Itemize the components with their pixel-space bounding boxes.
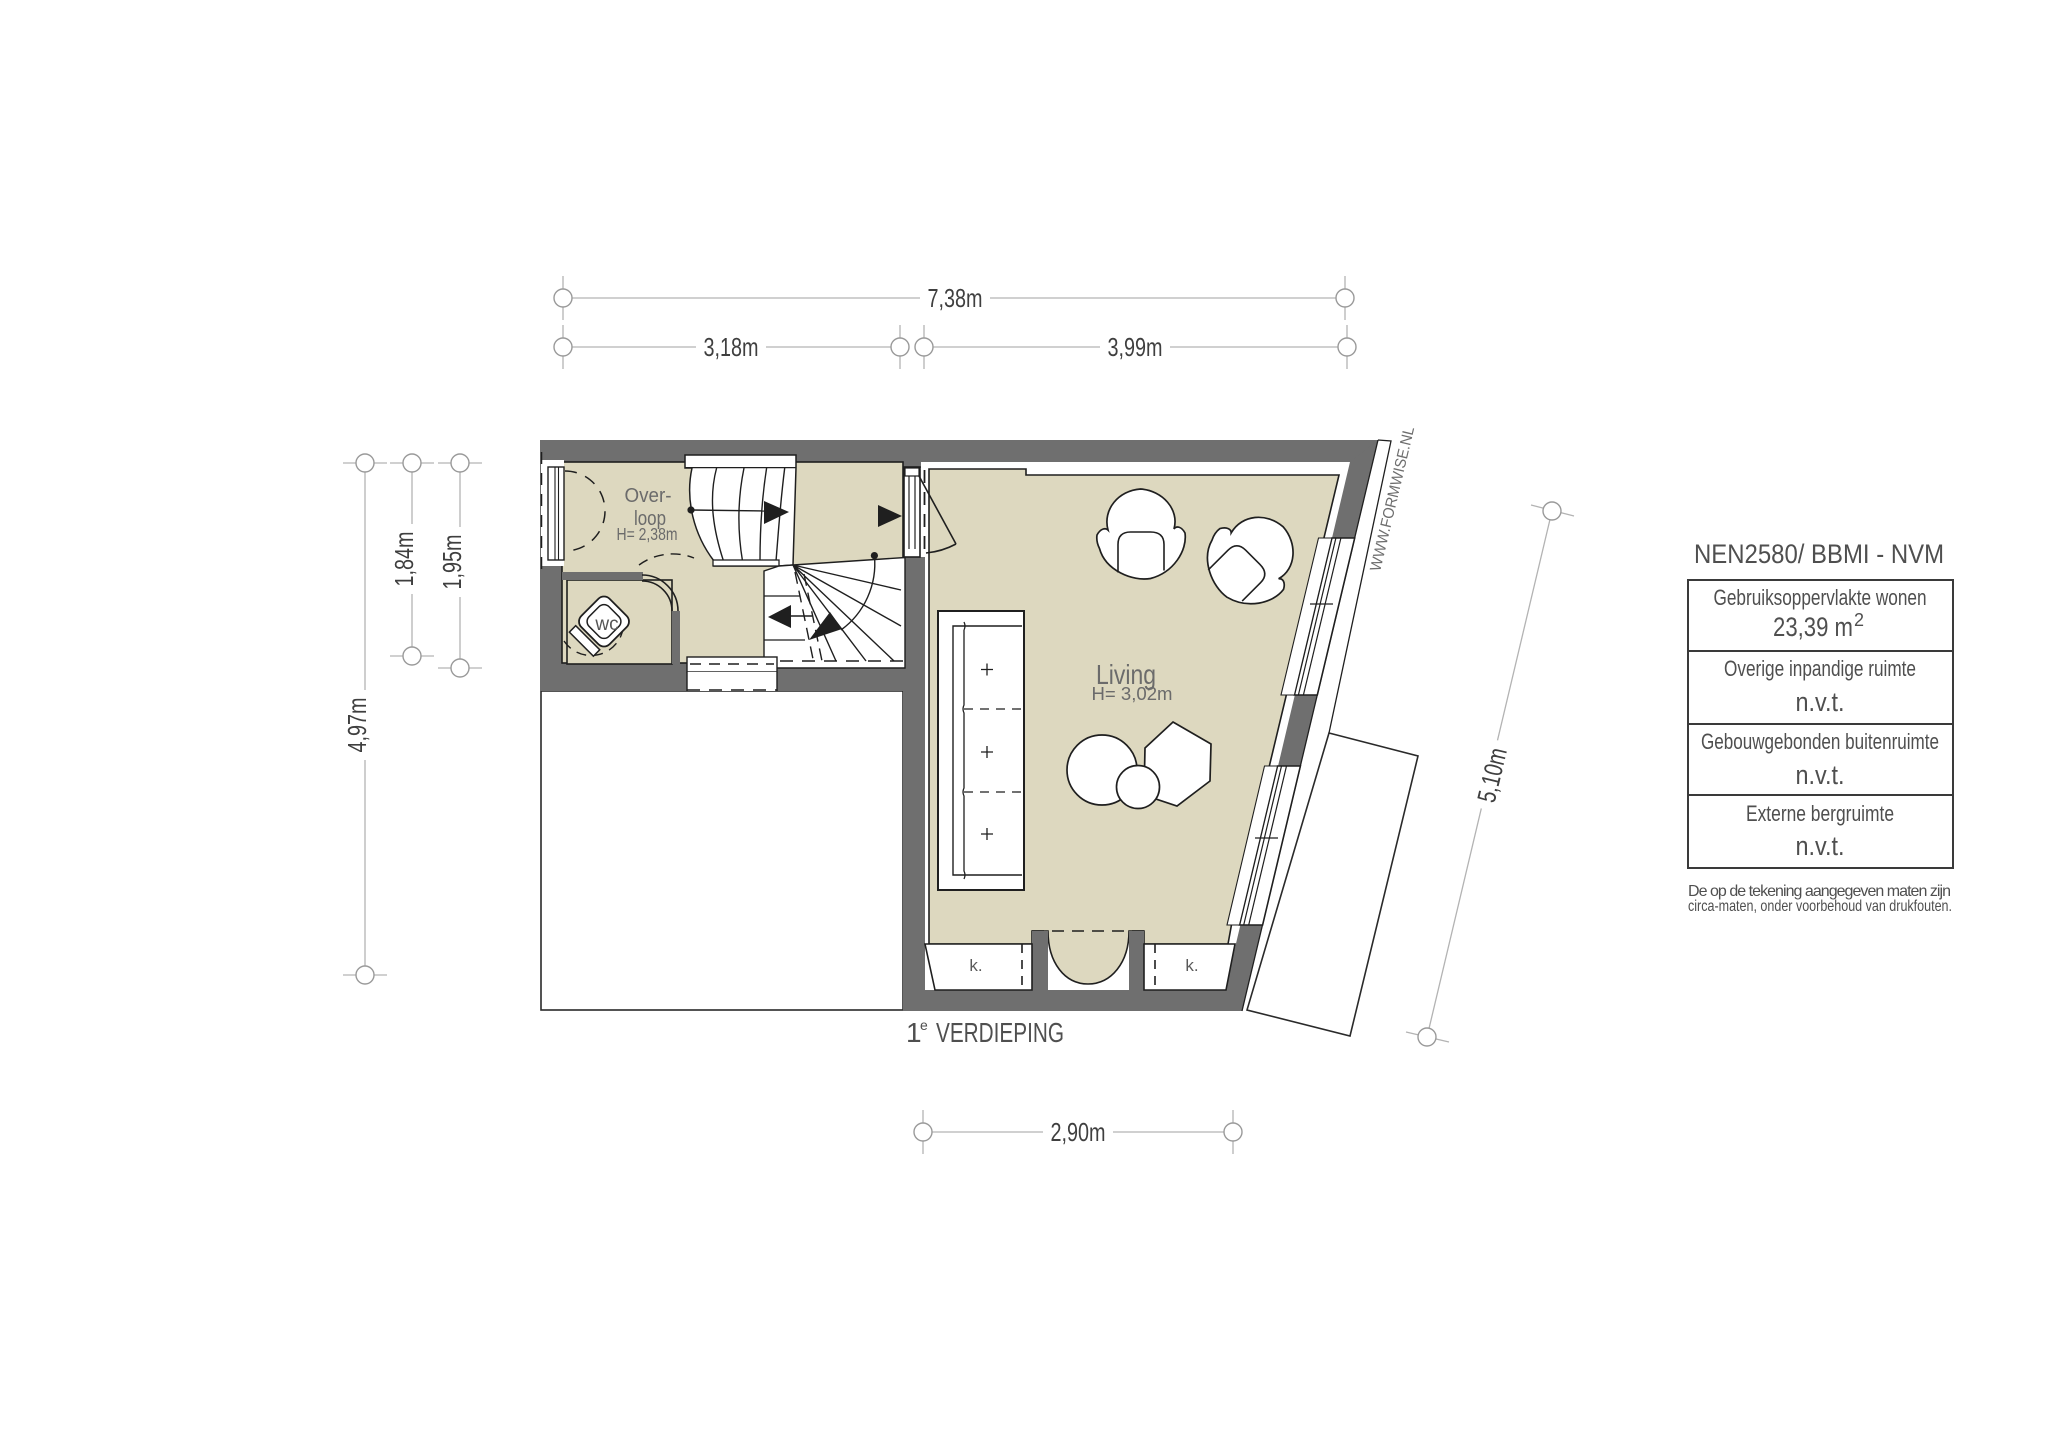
svg-text:n.v.t.: n.v.t.: [1796, 760, 1845, 790]
svg-text:3,99m: 3,99m: [1108, 332, 1163, 362]
svg-text:23,39 m: 23,39 m: [1773, 612, 1853, 642]
svg-text:Overige inpandige ruimte: Overige inpandige ruimte: [1724, 656, 1916, 681]
svg-text:k.: k.: [1185, 956, 1198, 975]
svg-text:1,95m: 1,95m: [437, 535, 467, 590]
svg-text:Externe bergruimte: Externe bergruimte: [1746, 801, 1894, 826]
svg-text:2: 2: [1854, 610, 1864, 630]
svg-text:wc: wc: [594, 614, 618, 635]
svg-text:3,18m: 3,18m: [704, 332, 759, 362]
svg-text:Gebouwgebonden buitenruimte: Gebouwgebonden buitenruimte: [1701, 729, 1939, 754]
svg-text:n.v.t.: n.v.t.: [1796, 687, 1845, 717]
svg-text:circa-maten, onder voorbehoud: circa-maten, onder voorbehoud van drukfo…: [1688, 898, 1952, 915]
svg-text:H= 3,02m: H= 3,02m: [1092, 684, 1173, 704]
svg-text:e: e: [920, 1017, 928, 1033]
svg-text:Gebruiksoppervlakte wonen: Gebruiksoppervlakte wonen: [1714, 585, 1927, 610]
svg-text:4,97m: 4,97m: [342, 698, 372, 753]
svg-text:Over-: Over-: [625, 485, 672, 507]
svg-text:k.: k.: [969, 956, 982, 975]
svg-text:NEN2580/ BBMI - NVM: NEN2580/ BBMI - NVM: [1694, 539, 1944, 569]
svg-text:n.v.t.: n.v.t.: [1796, 831, 1845, 861]
svg-text:VERDIEPING: VERDIEPING: [936, 1017, 1064, 1048]
svg-text:1,84m: 1,84m: [389, 532, 419, 587]
svg-text:2,90m: 2,90m: [1051, 1117, 1106, 1147]
svg-text:H= 2,38m: H= 2,38m: [617, 524, 678, 544]
svg-text:7,38m: 7,38m: [928, 283, 983, 313]
